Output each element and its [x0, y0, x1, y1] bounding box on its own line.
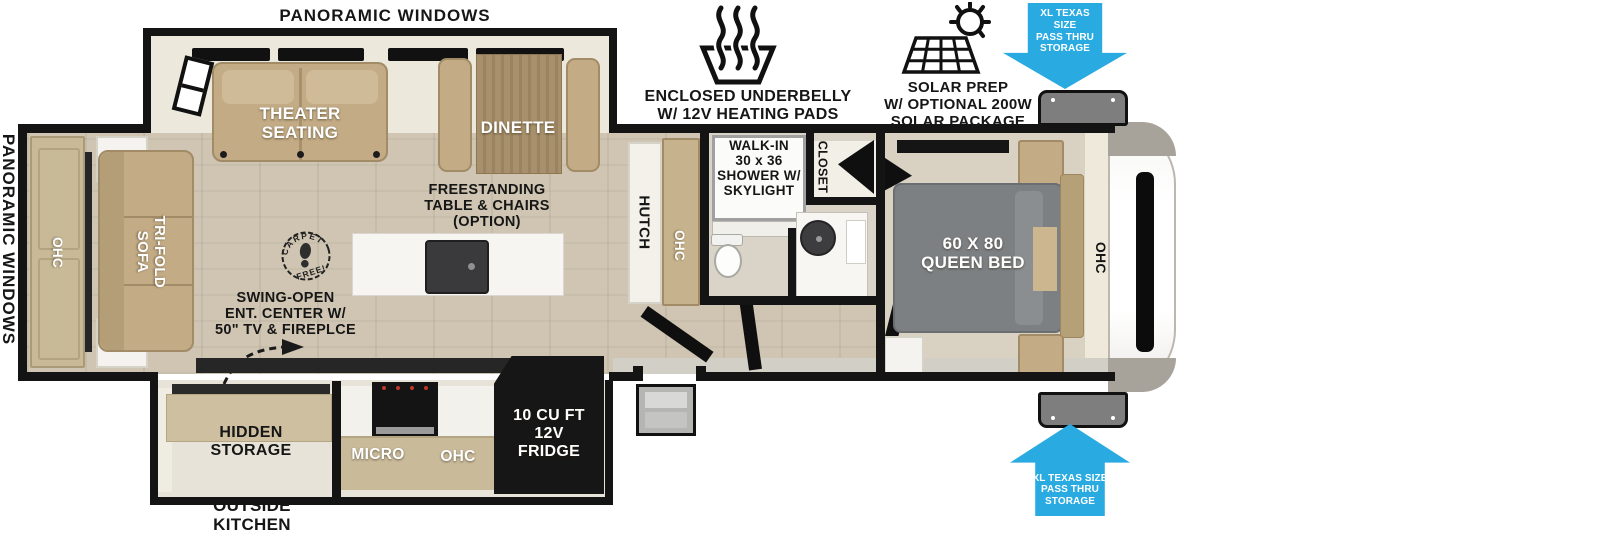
- fridge-label: 10 CU FT 12V FRIDGE: [513, 389, 585, 461]
- hutch-label: HUTCH: [603, 214, 683, 230]
- underbelly-label: ENCLOSED UNDERBELLY W/ 12V HEATING PADS: [628, 88, 868, 124]
- slideout-window: [278, 48, 364, 61]
- wall-segment: [18, 124, 151, 133]
- solar-prep-label: SOLAR PREP W/ OPTIONAL 200W SOLAR PACKAG…: [868, 80, 1048, 130]
- hidden-storage-label: HIDDEN STORAGE: [186, 424, 316, 460]
- heating-pads-icon: [695, 4, 781, 86]
- wall-segment: [18, 372, 158, 381]
- front-cap-bottom-band: [1108, 358, 1176, 392]
- dinette-table: [476, 54, 562, 174]
- fridge: 10 CU FT 12V FRIDGE: [494, 356, 604, 494]
- theater-seating-label: THEATER SEATING: [230, 104, 370, 142]
- pass-thru-box-top: [1038, 90, 1128, 126]
- queen-bed-label: 60 X 80 QUEEN BED: [898, 234, 1048, 272]
- freestanding-option-label: FREESTANDING TABLE & CHAIRS (OPTION): [402, 182, 572, 231]
- pass-thru-top-label: XL TEXAS SIZE PASS THRU STORAGE: [1028, 8, 1102, 55]
- dinette-bench-left: [438, 58, 472, 172]
- vanity-shelf: [846, 220, 866, 264]
- micro-label: MICRO: [341, 446, 415, 463]
- front-cap-top-band: [1108, 122, 1176, 156]
- front-window-strip: [1136, 172, 1154, 352]
- panoramic-windows-left-label: PANORAMIC WINDOWS: [0, 231, 109, 249]
- rivet-dot: [1111, 98, 1115, 102]
- wall-segment: [143, 28, 151, 133]
- rivet-dot: [1111, 416, 1115, 420]
- wall-segment: [696, 372, 1115, 381]
- pass-thru-arrow-up-icon: XL TEXAS SIZE PASS THRU STORAGE: [1010, 424, 1130, 516]
- floorplan-diagram: THEATER SEATING DINETTE OHC TRI-FOLD SOF…: [0, 0, 1600, 539]
- wall-segment: [788, 228, 796, 304]
- bedroom-tv-strip: [897, 140, 1009, 153]
- bedroom-ohc-label: OHC: [1070, 250, 1130, 266]
- wall-segment: [700, 133, 709, 305]
- bedroom-cabinet: [884, 336, 924, 376]
- solar-panel-icon: [888, 2, 992, 80]
- wall-segment: [150, 380, 158, 505]
- entry-steps: [636, 384, 696, 436]
- stove: [372, 382, 438, 436]
- wall-segment: [150, 497, 613, 505]
- vanity-sink: [800, 220, 836, 256]
- kitchen-ohc-label: OHC: [425, 448, 491, 465]
- wall-segment: [143, 28, 617, 36]
- dinette-label: DINETTE: [448, 118, 588, 137]
- pass-thru-arrow-down-icon: XL TEXAS SIZE PASS THRU STORAGE: [1003, 3, 1127, 89]
- pass-thru-box-bottom: [1038, 392, 1128, 428]
- wall-segment: [18, 124, 27, 381]
- wall-segment: [806, 197, 885, 205]
- dinette-bench-right: [566, 58, 600, 172]
- panoramic-windows-top-label: PANORAMIC WINDOWS: [265, 6, 505, 25]
- wardrobe-top: [1018, 140, 1064, 186]
- rivet-dot: [1051, 98, 1055, 102]
- rivet-dot: [1051, 416, 1055, 420]
- wall-segment: [605, 380, 613, 505]
- wall-segment: [806, 133, 814, 205]
- wall-segment: [876, 133, 885, 381]
- door-jamb: [633, 366, 643, 381]
- ent-center-label: SWING-OPEN ENT. CENTER W/ 50" TV & FIREP…: [193, 290, 378, 339]
- wall-segment: [332, 381, 341, 498]
- island-sink: [425, 240, 489, 294]
- kitchen-island: [352, 233, 564, 296]
- tri-fold-sofa-label: TRI-FOLD SOFA: [95, 235, 205, 269]
- door-jamb: [696, 366, 706, 381]
- pass-thru-bottom-label: XL TEXAS SIZE PASS THRU STORAGE: [1028, 473, 1112, 508]
- wall-segment: [609, 28, 617, 133]
- sun-icon: [951, 3, 989, 36]
- toilet-bowl: [714, 244, 742, 278]
